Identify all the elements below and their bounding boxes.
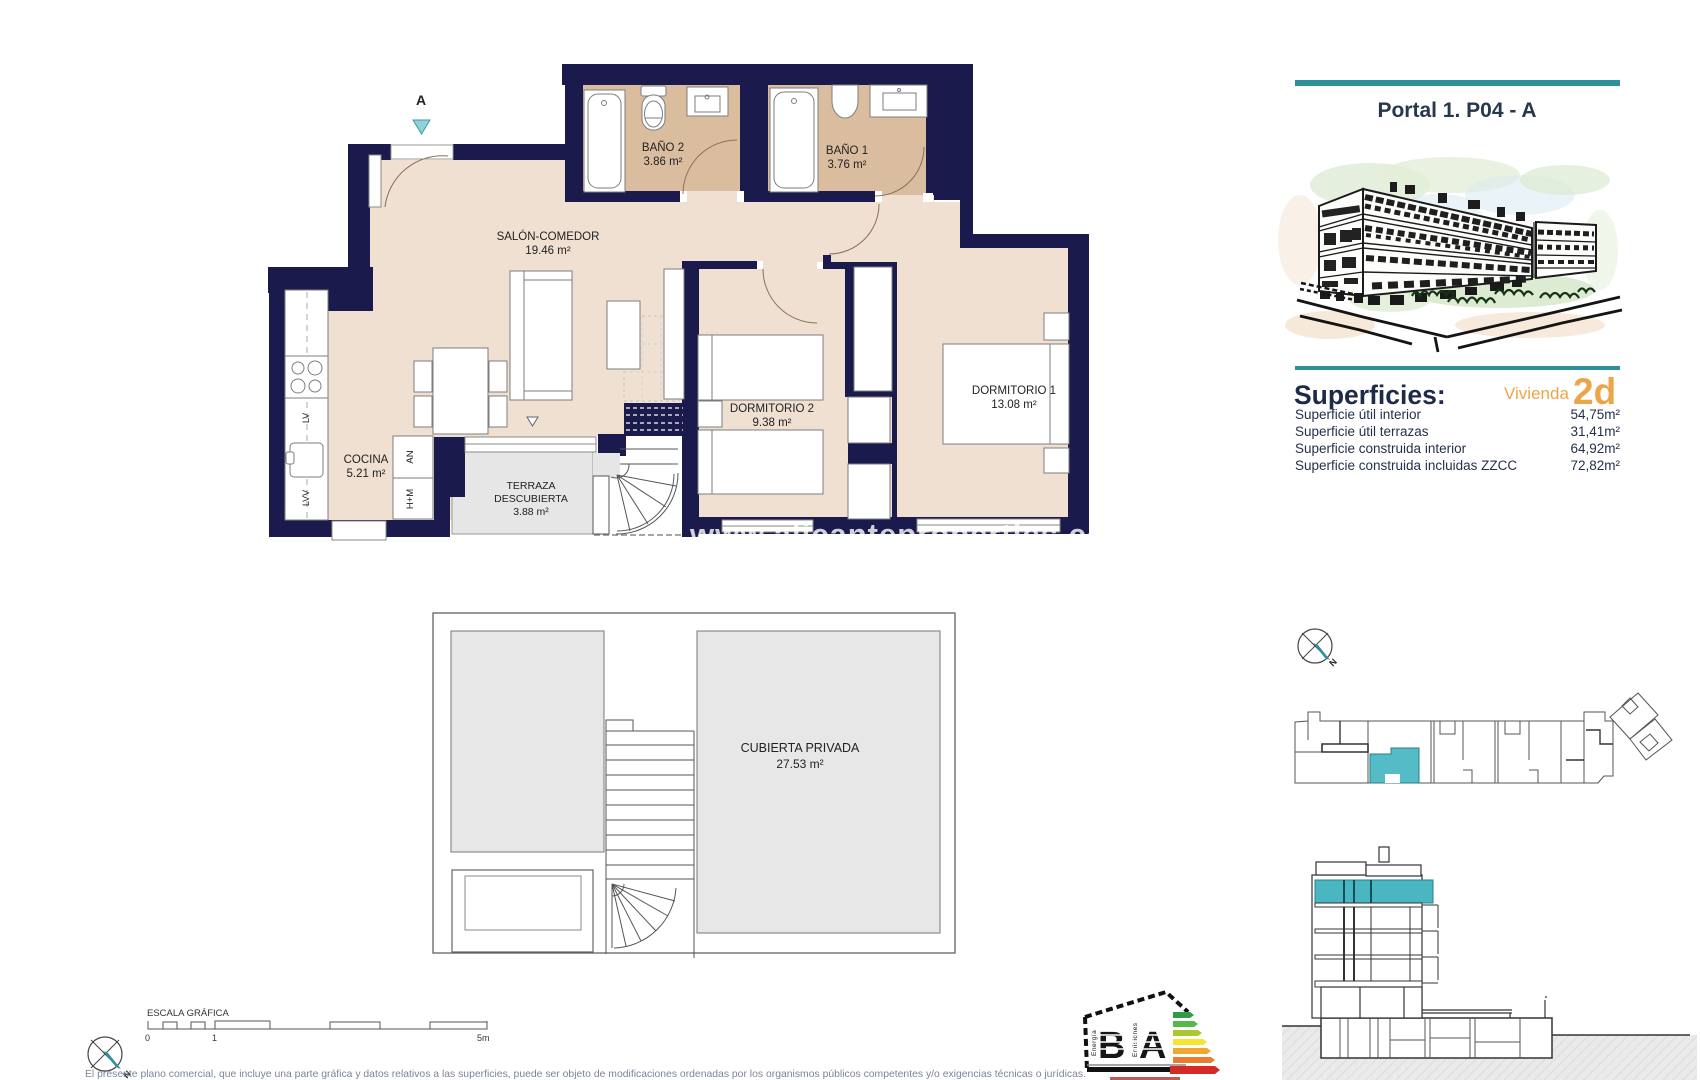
svg-text:Superficie útil terrazas: Superficie útil terrazas [1295, 424, 1429, 439]
svg-text:A: A [416, 92, 426, 108]
svg-text:LV: LV [301, 413, 311, 423]
svg-text:www.alicanteproperties.com: www.alicanteproperties.com [689, 517, 1135, 552]
svg-text:DORMITORIO 2: DORMITORIO 2 [730, 403, 814, 415]
svg-text:LVV: LVV [301, 490, 311, 506]
svg-text:SALÓN-COMEDOR: SALÓN-COMEDOR [497, 230, 600, 243]
svg-text:B: B [1098, 1025, 1125, 1067]
svg-text:Emisiones: Emisiones [1132, 1022, 1139, 1057]
svg-text:27.53 m²: 27.53 m² [776, 757, 823, 771]
svg-text:54,75m²: 54,75m² [1570, 407, 1620, 422]
svg-text:3.86 m²: 3.86 m² [644, 156, 683, 168]
svg-text:Superficie útil interior: Superficie útil interior [1295, 407, 1422, 422]
svg-text:H+M: H+M [405, 489, 416, 509]
svg-text:64,92m²: 64,92m² [1570, 441, 1620, 456]
svg-text:AN: AN [405, 450, 416, 463]
svg-text:Energía: Energía [1091, 1030, 1098, 1056]
svg-text:5.21 m²: 5.21 m² [347, 468, 386, 480]
svg-text:DESCUBIERTA: DESCUBIERTA [494, 493, 568, 505]
svg-text:ESCALA GRÁFICA: ESCALA GRÁFICA [147, 1008, 229, 1019]
svg-text:Superficies:: Superficies: [1294, 380, 1446, 410]
svg-text:19.46 m²: 19.46 m² [525, 245, 571, 257]
svg-text:3.88 m²: 3.88 m² [513, 506, 549, 518]
svg-text:5m: 5m [477, 1033, 490, 1043]
svg-text:Portal 1. P04 - A: Portal 1. P04 - A [1377, 99, 1536, 122]
svg-text:COCINA: COCINA [344, 454, 389, 466]
svg-text:Superficie construida interior: Superficie construida interior [1295, 441, 1467, 456]
svg-text:A: A [1139, 1025, 1166, 1067]
svg-text:3.76 m²: 3.76 m² [828, 159, 867, 171]
svg-text:13.08 m²: 13.08 m² [991, 399, 1037, 411]
svg-text:BAÑO 2: BAÑO 2 [642, 141, 684, 154]
svg-text:Superficie construida incluida: Superficie construida incluidas ZZCC [1295, 458, 1517, 473]
svg-text:31,41m²: 31,41m² [1570, 424, 1620, 439]
svg-text:72,82m²: 72,82m² [1570, 458, 1620, 473]
svg-text:1: 1 [212, 1033, 217, 1043]
svg-text:El presente plano comercial, q: El presente plano comercial, que incluye… [85, 1069, 1086, 1080]
svg-text:Vivienda: Vivienda [1504, 384, 1569, 403]
svg-text:0: 0 [145, 1033, 150, 1043]
svg-text:9.38 m²: 9.38 m² [753, 417, 792, 429]
svg-text:TERRAZA: TERRAZA [506, 480, 555, 492]
svg-text:CUBIERTA PRIVADA: CUBIERTA PRIVADA [741, 741, 860, 755]
svg-text:DORMITORIO 1: DORMITORIO 1 [972, 385, 1056, 397]
svg-text:BAÑO 1: BAÑO 1 [826, 144, 868, 157]
svg-text:2d: 2d [1573, 371, 1616, 412]
svg-text:N: N [1327, 657, 1339, 669]
